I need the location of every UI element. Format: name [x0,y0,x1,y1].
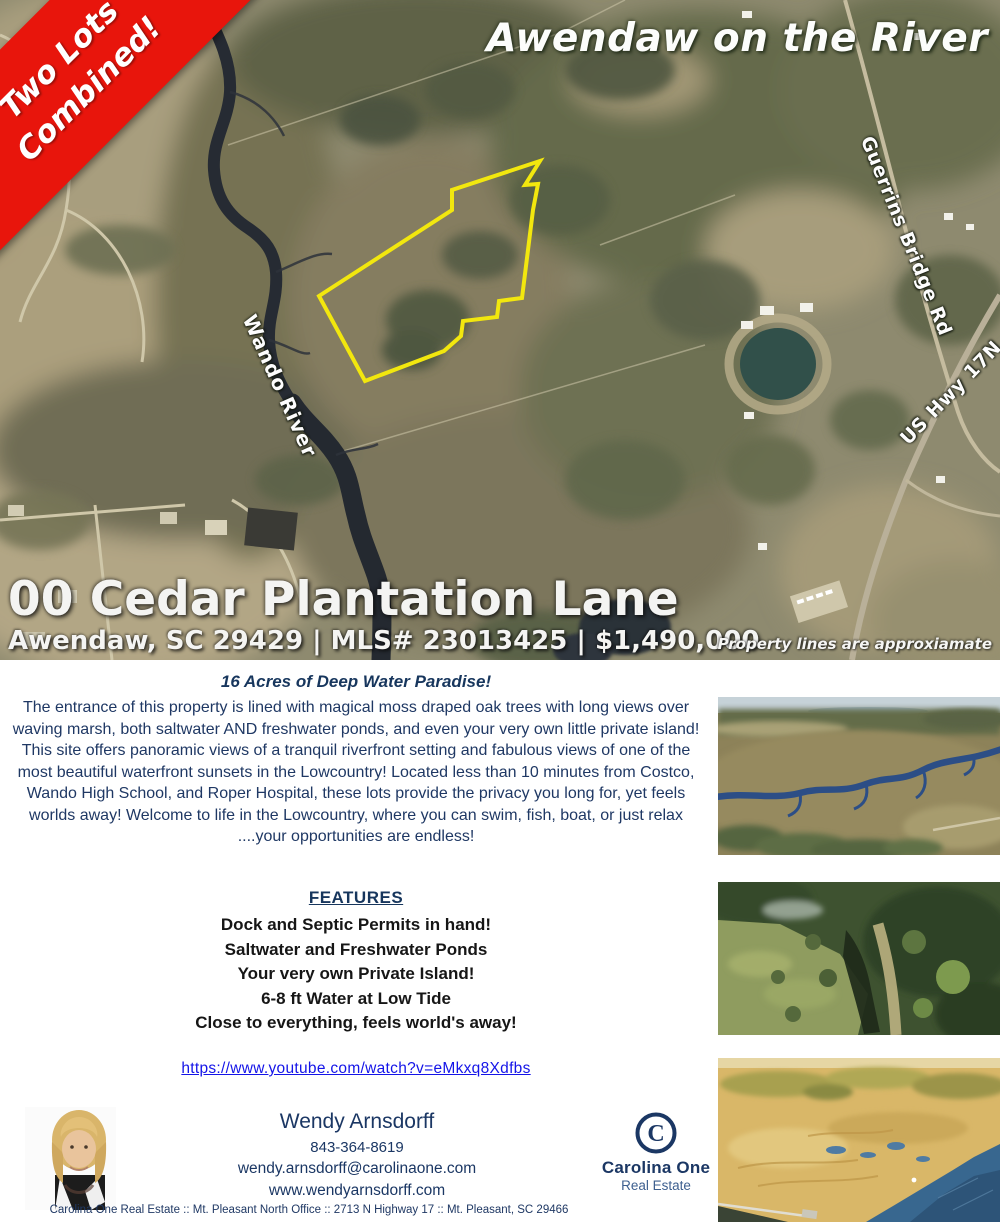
flyer-title: Awendaw on the River [486,16,988,61]
property-mls-price: Awendaw, SC 29429 | MLS# 23013425 | $1,4… [8,626,759,656]
carolina-one-logo: C Carolina One Real Estate [592,1112,720,1193]
aerial-map: Wando River Guerrins Bridge Rd US Hwy 17… [0,0,1000,660]
features-list: Dock and Septic Permits in hand! Saltwat… [0,913,712,1036]
photo-marsh-river-aerial [718,697,1000,855]
brand-subtitle: Real Estate [592,1178,720,1193]
feature-item: Saltwater and Freshwater Ponds [0,938,712,963]
youtube-link[interactable]: https://www.youtube.com/watch?v=eMkxq8Xd… [181,1060,530,1077]
photo-pond-woods-aerial [718,882,1000,1035]
feature-item: Your very own Private Island! [0,962,712,987]
feature-item: 6-8 ft Water at Low Tide [0,987,712,1012]
svg-text:C: C [647,1121,664,1147]
brand-name: Carolina One [592,1158,720,1178]
property-lines-disclaimer: Property lines are approxiamate [718,635,992,653]
agent-name: Wendy Arnsdorff [155,1110,559,1134]
office-footer: Carolina One Real Estate :: Mt. Pleasant… [0,1204,618,1216]
feature-item: Close to everything, feels world's away! [0,1011,712,1036]
listing-headline: 16 Acres of Deep Water Paradise! [0,672,712,692]
flyer-page: Wando River Guerrins Bridge Rd US Hwy 17… [0,0,1000,1222]
agent-phone: 843-364-8619 [155,1139,559,1156]
property-address: 00 Cedar Plantation Lane [8,572,679,627]
agent-email: wendy.arnsdorff@carolinaone.com [155,1160,559,1178]
photo-golden-marsh-aerial [718,1058,1000,1222]
features-heading: FEATURES [0,888,712,908]
agent-contact-block: Wendy Arnsdorff 843-364-8619 wendy.arnsd… [155,1110,559,1204]
carolina-one-c-icon: C [635,1112,677,1154]
agent-website: www.wendyarnsdorff.com [155,1182,559,1200]
video-link-row: https://www.youtube.com/watch?v=eMkxq8Xd… [0,1060,712,1078]
agent-photo [25,1107,116,1210]
feature-item: Dock and Septic Permits in hand! [0,913,712,938]
listing-description: The entrance of this property is lined w… [3,697,709,848]
